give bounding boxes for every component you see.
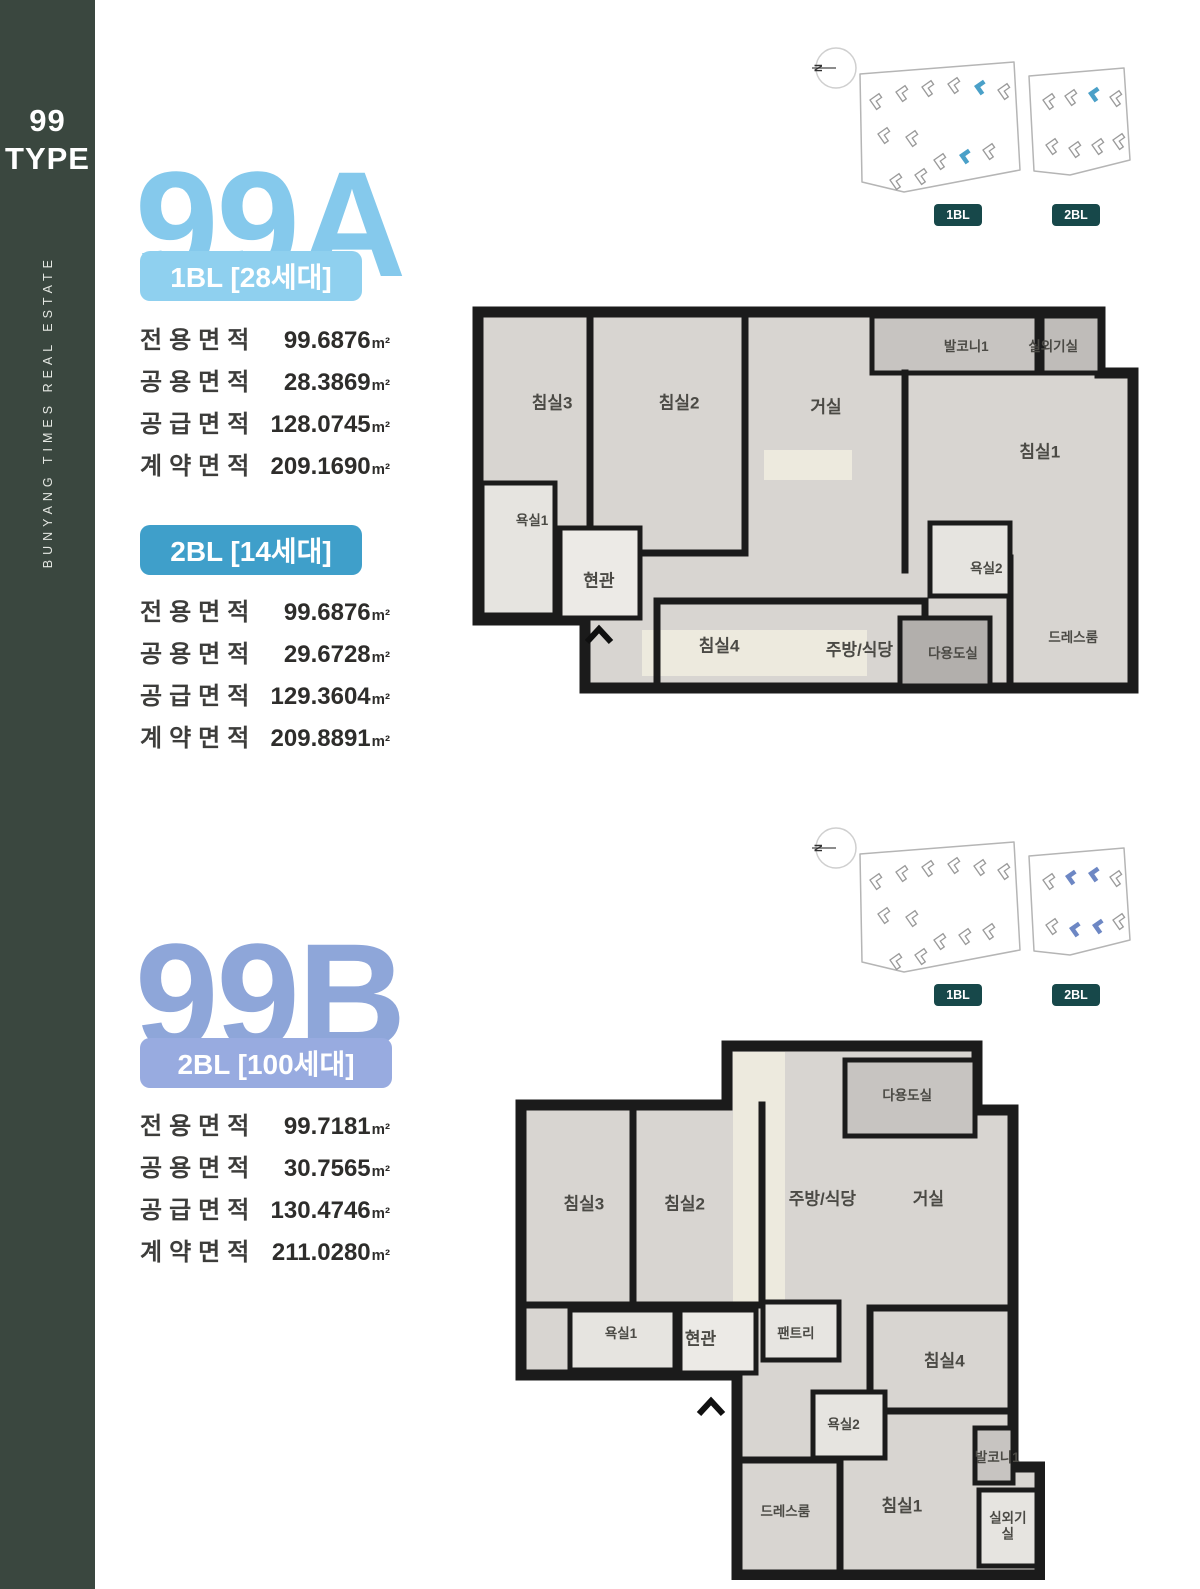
type-word: TYPE bbox=[0, 140, 95, 178]
area-value: 211.0280m² bbox=[272, 1239, 390, 1267]
area-label: 공용면적 bbox=[140, 362, 256, 397]
area-number: 99.6876 bbox=[284, 599, 371, 626]
room-label-침실1: 침실1 bbox=[1019, 437, 1060, 462]
area-table-99b-2bl: 전용면적 99.7181m² 공용면적 30.7565m² 공급면적 130.4… bbox=[140, 1106, 390, 1274]
area-number: 209.8891 bbox=[271, 725, 371, 752]
area-value: 28.3869m² bbox=[284, 369, 390, 397]
area-number: 128.0745 bbox=[271, 411, 371, 438]
area-label: 전용면적 bbox=[140, 592, 256, 627]
room-label-주방/식당: 주방/식당 bbox=[826, 636, 893, 661]
block-badge-99b-2bl: 2BL [100세대] bbox=[140, 1038, 392, 1088]
area-unit: m² bbox=[372, 733, 390, 750]
room-label-드레스룸: 드레스룸 bbox=[1048, 626, 1098, 646]
block-badge-99a-1bl: 1BL [28세대] bbox=[140, 251, 362, 301]
room-label-침실2: 침실2 bbox=[664, 1190, 705, 1215]
room-label-팬트리: 팬트리 bbox=[777, 1322, 814, 1342]
area-unit: m² bbox=[372, 1121, 390, 1138]
compass-north-letter: N bbox=[813, 844, 825, 852]
area-unit: m² bbox=[372, 335, 390, 352]
page: 99 TYPE BUNYANG TIMES REAL ESTATE 99A N … bbox=[0, 0, 1200, 1589]
area-unit: m² bbox=[372, 461, 390, 478]
sitemap-99b: N 1BL 2BL bbox=[808, 822, 1138, 1012]
block-badge-99a-2bl: 2BL [14세대] bbox=[140, 525, 362, 575]
parcel-outline-1bl bbox=[860, 842, 1020, 972]
area-row: 계약면적 209.1690m² bbox=[140, 446, 390, 488]
room-label-거실: 거실 bbox=[810, 393, 841, 418]
area-label: 전용면적 bbox=[140, 1106, 256, 1141]
area-number: 211.0280 bbox=[272, 1239, 371, 1266]
area-table-99a-1bl: 전용면적 99.6876m² 공용면적 28.3869m² 공급면적 128.0… bbox=[140, 320, 390, 488]
area-label: 계약면적 bbox=[140, 446, 256, 481]
area-number: 209.1690 bbox=[271, 453, 371, 480]
area-row: 공급면적 130.4746m² bbox=[140, 1190, 390, 1232]
area-label: 공급면적 bbox=[140, 404, 256, 439]
room-label-다용도실: 다용도실 bbox=[882, 1084, 932, 1104]
parcel-outline-1bl bbox=[860, 62, 1020, 192]
area-row: 계약면적 209.8891m² bbox=[140, 718, 390, 760]
sitemap-badge-1bl: 1BL bbox=[934, 984, 982, 1006]
area-number: 28.3869 bbox=[284, 369, 371, 396]
area-row: 계약면적 211.0280m² bbox=[140, 1232, 390, 1274]
area-unit: m² bbox=[372, 1163, 390, 1180]
sitemap-badge-2bl: 2BL bbox=[1052, 984, 1100, 1006]
room-label-다용도실: 다용도실 bbox=[928, 642, 978, 662]
area-label: 전용면적 bbox=[140, 320, 256, 355]
area-value: 128.0745m² bbox=[271, 411, 390, 439]
area-value: 30.7565m² bbox=[284, 1155, 390, 1183]
floorplan-99a: 침실3침실2거실발코니1실외기실침실1욕실1현관침실4주방/식당다용도실욕실2드… bbox=[472, 300, 1140, 705]
area-value: 130.4746m² bbox=[271, 1197, 390, 1225]
area-value: 99.6876m² bbox=[284, 599, 390, 627]
area-unit: m² bbox=[372, 607, 390, 624]
area-row: 공급면적 128.0745m² bbox=[140, 404, 390, 446]
type-label: 99 TYPE bbox=[0, 102, 95, 178]
room-label-현관: 현관 bbox=[685, 1325, 716, 1350]
area-number: 130.4746 bbox=[271, 1197, 371, 1224]
room-label-침실2: 침실2 bbox=[659, 389, 700, 414]
area-value: 209.1690m² bbox=[271, 453, 390, 481]
room-label-주방/식당: 주방/식당 bbox=[789, 1184, 856, 1209]
area-number: 30.7565 bbox=[284, 1155, 371, 1182]
floorplan-99a-room-labels: 침실3침실2거실발코니1실외기실침실1욕실1현관침실4주방/식당다용도실욕실2드… bbox=[472, 300, 1140, 705]
room-label-발코니1: 발코니1 bbox=[944, 335, 989, 355]
area-label: 계약면적 bbox=[140, 1232, 256, 1267]
area-number: 99.6876 bbox=[284, 327, 371, 354]
area-row: 전용면적 99.6876m² bbox=[140, 320, 390, 362]
room-label-욕실1: 욕실1 bbox=[605, 1322, 637, 1342]
area-row: 전용면적 99.7181m² bbox=[140, 1106, 390, 1148]
room-label-현관: 현관 bbox=[583, 567, 614, 592]
sidebar: 99 TYPE BUNYANG TIMES REAL ESTATE bbox=[0, 0, 95, 1589]
area-value: 99.7181m² bbox=[284, 1113, 390, 1141]
room-label-욕실1: 욕실1 bbox=[516, 509, 548, 529]
compass-north-letter: N bbox=[813, 64, 825, 72]
area-table-99a-2bl: 전용면적 99.6876m² 공용면적 29.6728m² 공급면적 129.3… bbox=[140, 592, 390, 760]
floorplan-99b: 침실3침실2주방/식당거실다용도실욕실1현관팬트리욕실2드레스룸침실1침실4발코… bbox=[515, 1040, 1045, 1580]
area-number: 129.3604 bbox=[271, 683, 371, 710]
room-label-발코니1: 발코니1 bbox=[975, 1446, 1020, 1466]
type-number: 99 bbox=[0, 102, 95, 140]
area-value: 129.3604m² bbox=[271, 683, 390, 711]
room-label-침실4: 침실4 bbox=[924, 1346, 965, 1371]
parcel-outline-2bl bbox=[1029, 848, 1130, 955]
area-value: 29.6728m² bbox=[284, 641, 390, 669]
area-value: 209.8891m² bbox=[271, 725, 390, 753]
area-number: 29.6728 bbox=[284, 641, 371, 668]
room-label-욕실2: 욕실2 bbox=[970, 557, 1002, 577]
room-label-실외기실: 실외기실 bbox=[1028, 335, 1078, 355]
area-label: 공급면적 bbox=[140, 676, 256, 711]
area-unit: m² bbox=[372, 1247, 390, 1264]
room-label-드레스룸: 드레스룸 bbox=[760, 1500, 810, 1520]
area-row: 공급면적 129.3604m² bbox=[140, 676, 390, 718]
area-row: 공용면적 29.6728m² bbox=[140, 634, 390, 676]
sitemap-99a: N 1BL 2BL bbox=[808, 42, 1138, 232]
room-label-침실3: 침실3 bbox=[564, 1190, 605, 1215]
area-row: 전용면적 99.6876m² bbox=[140, 592, 390, 634]
area-label: 공용면적 bbox=[140, 1148, 256, 1183]
area-unit: m² bbox=[372, 1205, 390, 1222]
area-row: 공용면적 28.3869m² bbox=[140, 362, 390, 404]
brand-vertical-text: BUNYANG TIMES REAL ESTATE bbox=[41, 255, 55, 568]
parcel-outline-2bl bbox=[1029, 68, 1130, 175]
area-label: 공급면적 bbox=[140, 1190, 256, 1225]
room-label-침실3: 침실3 bbox=[532, 389, 573, 414]
area-label: 공용면적 bbox=[140, 634, 256, 669]
area-unit: m² bbox=[372, 377, 390, 394]
area-unit: m² bbox=[372, 691, 390, 708]
room-label-실외기실: 실외기실 bbox=[986, 1510, 1030, 1541]
area-number: 99.7181 bbox=[284, 1113, 371, 1140]
area-unit: m² bbox=[372, 419, 390, 436]
area-label: 계약면적 bbox=[140, 718, 256, 753]
area-unit: m² bbox=[372, 649, 390, 666]
room-label-거실: 거실 bbox=[913, 1184, 944, 1209]
sitemap-badge-2bl: 2BL bbox=[1052, 204, 1100, 226]
room-label-침실4: 침실4 bbox=[699, 632, 740, 657]
floorplan-99b-room-labels: 침실3침실2주방/식당거실다용도실욕실1현관팬트리욕실2드레스룸침실1침실4발코… bbox=[515, 1040, 1045, 1580]
area-value: 99.6876m² bbox=[284, 327, 390, 355]
area-row: 공용면적 30.7565m² bbox=[140, 1148, 390, 1190]
sitemap-badge-1bl: 1BL bbox=[934, 204, 982, 226]
room-label-욕실2: 욕실2 bbox=[827, 1413, 859, 1433]
room-label-침실1: 침실1 bbox=[882, 1492, 923, 1517]
